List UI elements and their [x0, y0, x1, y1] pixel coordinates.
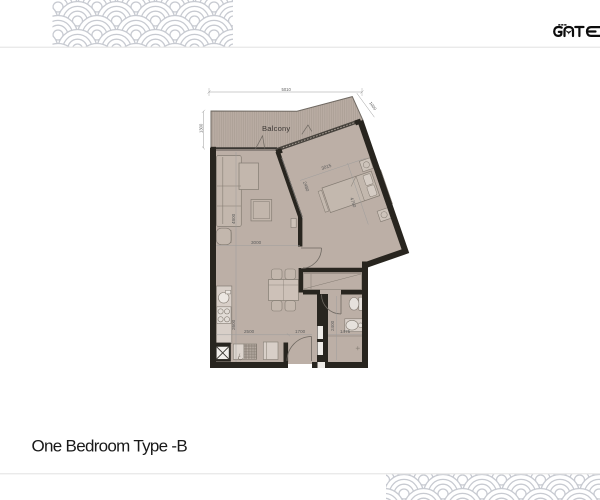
- svg-text:Balcony: Balcony: [262, 124, 290, 133]
- svg-text:5010: 5010: [282, 87, 292, 92]
- svg-text:2400: 2400: [330, 320, 335, 331]
- svg-text:1700: 1700: [295, 329, 306, 334]
- svg-text:1300: 1300: [199, 123, 204, 133]
- svg-text:2600: 2600: [231, 319, 236, 330]
- svg-text:2500: 2500: [244, 329, 255, 334]
- svg-text:1475: 1475: [340, 329, 351, 334]
- svg-text:4800: 4800: [231, 213, 236, 224]
- svg-text:3000: 3000: [251, 240, 262, 245]
- svg-text:One Bedroom Type -B: One Bedroom Type -B: [32, 437, 188, 456]
